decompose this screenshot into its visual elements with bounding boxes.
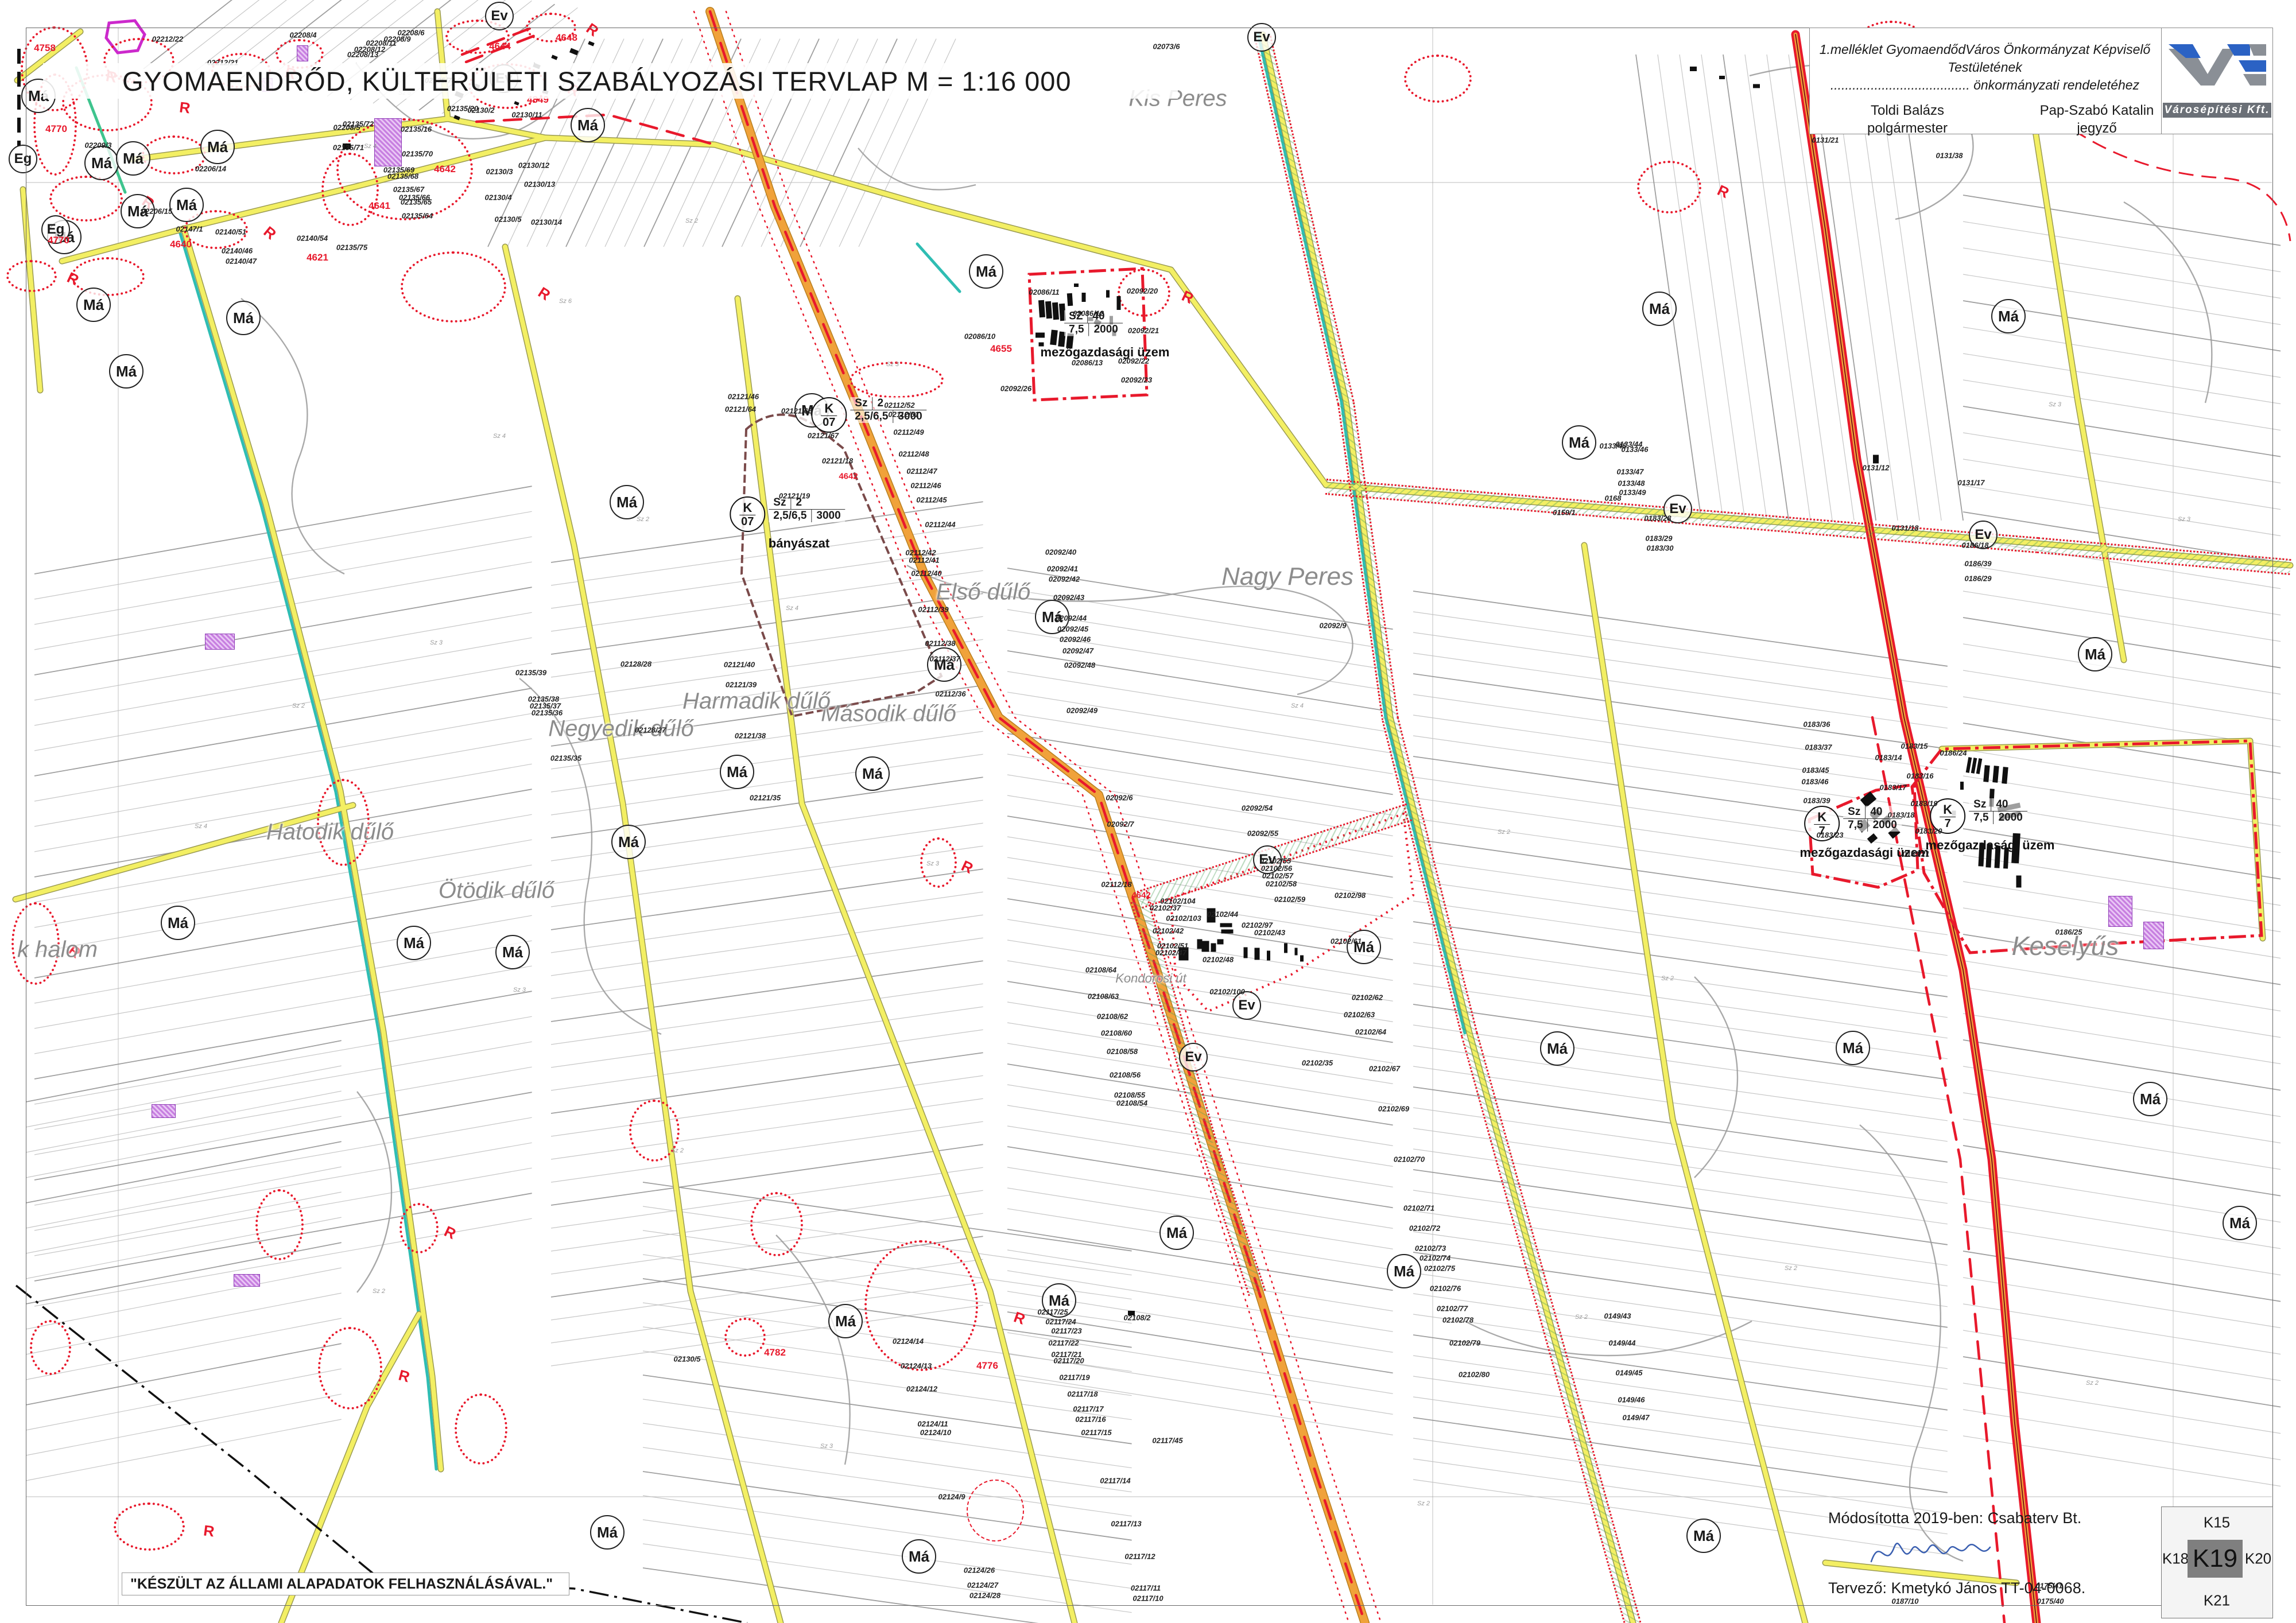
building-footprint [1221, 930, 1234, 934]
parcel-number: 02135/71 [333, 143, 364, 152]
parcel-number: 02117/17 [1073, 1405, 1103, 1414]
parcel-line [1007, 899, 1393, 960]
road-line [1584, 545, 1805, 1623]
special-area-purple [374, 118, 402, 166]
parcel-line [1963, 1014, 2281, 1064]
place-name-label: Harmadik dűlő [682, 689, 831, 715]
parcel-number: 02102/74 [1420, 1254, 1450, 1263]
parcel-number: 02124/9 [938, 1493, 965, 1501]
parcel-number: 02140/54 [297, 234, 328, 243]
parcel-number: 0183/23 [1817, 831, 1844, 840]
parcel-line [1963, 433, 2281, 483]
parcel-number: 02135/39 [515, 669, 546, 677]
parcel-number: 02092/23 [1121, 376, 1152, 385]
parcel-number: 0131/18 [1892, 524, 1919, 533]
special-area-purple [234, 1274, 260, 1287]
parcel-number: 02108/58 [1107, 1047, 1138, 1056]
parcel-line [34, 915, 532, 1003]
parcel-line [1680, 55, 1745, 521]
arch-site-boundary [114, 1502, 185, 1551]
ma-zone-badge: Má [590, 1515, 625, 1550]
parcel-number: 02092/47 [1062, 647, 1093, 655]
parcel-line [551, 938, 983, 999]
parcel-number: 02117/11 [1131, 1584, 1161, 1593]
parcel-number: 02102/61 [1331, 937, 1362, 946]
parcel-line [34, 713, 532, 801]
parcel-number: 02102/48 [1203, 956, 1234, 964]
parcel-line [1413, 1418, 1948, 1493]
parcel-line [1007, 1147, 1393, 1207]
parcel-number: 02130/4 [485, 193, 512, 202]
modified-by: Módosította 2019-ben: Csabaterv Bt. [1828, 1509, 2127, 1527]
ma-zone-badge: Má [1347, 930, 1381, 964]
place-name-label: k halom [17, 937, 98, 963]
parcel-number: 02117/20 [1053, 1357, 1084, 1365]
parcel-number: 02117/15 [1081, 1428, 1111, 1437]
parcel-line [1413, 1252, 1948, 1327]
parcel-number: 02121/18 [822, 457, 853, 465]
parcel-line [34, 966, 532, 1054]
parcel-line [1963, 1093, 2281, 1143]
parcel-line [551, 777, 983, 838]
parcel-line [1007, 961, 1393, 1022]
parcel-number: 02108/56 [1110, 1071, 1141, 1080]
parcel-number: 02102/100 [1209, 988, 1244, 996]
parcel-line [1413, 632, 1948, 708]
parcel-number: 02130/3 [486, 168, 513, 176]
parcel-number: 0186/24 [1940, 749, 1967, 758]
parcel-line [1413, 942, 1948, 1018]
parcel-line [1963, 565, 2281, 615]
parcel-number: 02102/70 [1394, 1155, 1425, 1164]
land-use-code: Sz 2 [1417, 1500, 1430, 1507]
arch-site-id: 4758 [34, 42, 56, 54]
land-use-code: Sz 2 [1785, 1265, 1797, 1272]
k-zone-badge: K7Sz407,52000 [1930, 798, 2027, 834]
building-footprint [1300, 956, 1304, 962]
parcel-number: 0183/19 [1911, 799, 1938, 808]
arch-site-boundary [318, 1327, 382, 1410]
page-title: GYOMAENDRŐD, KÜLTERÜLETI SZABÁLYOZÁSI TE… [43, 65, 1072, 97]
parcel-line [1007, 671, 1393, 732]
ma-zone-badge: Má [720, 755, 754, 789]
parcel-number: 02102/67 [1369, 1065, 1400, 1073]
parcel-number: 02102/76 [1430, 1284, 1461, 1293]
parcel-line [1007, 1167, 1393, 1228]
road-line [184, 228, 441, 1469]
ev-zone-badge: Ev [1247, 23, 1276, 52]
parcel-number: 02212/22 [152, 35, 183, 44]
parcel-number: 02121/40 [724, 661, 755, 669]
parcel-line [26, 1091, 342, 1152]
land-use-code: Sz 2 [1661, 975, 1674, 982]
parcel-number: 02130/2 [468, 106, 495, 115]
place-name-label: Ötödik dűlő [439, 878, 554, 904]
ma-zone-badge: Má [1642, 292, 1677, 326]
parcel-number: 02140/47 [226, 257, 257, 266]
parcel-number: 02092/20 [1127, 287, 1158, 296]
parcel-line [34, 941, 532, 1028]
mayor-name: Toldi Balázs [1844, 102, 1971, 119]
parcel-number: 0183/30 [1647, 544, 1674, 553]
special-area-purple [297, 45, 308, 61]
parcel-number: 02121/35 [750, 794, 781, 802]
parcel-line [26, 1419, 342, 1481]
ma-zone-badge: Má [611, 825, 646, 859]
arch-site-id: 4782 [764, 1347, 786, 1358]
parcel-number: 02124/13 [901, 1362, 932, 1370]
parcel-number: 02112/45 [916, 496, 947, 504]
arch-site-id: 4776 [976, 1360, 998, 1372]
parcel-line [1963, 1066, 2281, 1117]
contour-line [776, 1235, 850, 1465]
special-area-purple [152, 1104, 176, 1118]
parcel-line [1413, 880, 1948, 956]
parcel-number: 02135/35 [550, 754, 581, 763]
official-mayor: Toldi Balázs polgármester [1844, 102, 1971, 137]
parcel-number: 02092/42 [1049, 575, 1080, 584]
parcel-line [1413, 715, 1948, 790]
parcel-number: 02130/12 [518, 161, 549, 170]
ma-zone-badge: Má [1387, 1254, 1421, 1288]
special-area-purple [205, 634, 235, 650]
land-use-code: Sz 3 [2178, 516, 2190, 523]
parcel-line [26, 1344, 342, 1405]
special-area-purple [2108, 896, 2132, 927]
parcel-line [551, 1030, 983, 1090]
parcel-number: 02121/46 [728, 393, 759, 401]
arch-site-id: 4642 [434, 164, 456, 175]
parcel-number: 02102/77 [1437, 1304, 1468, 1313]
parcel-number: 02102/80 [1459, 1370, 1490, 1379]
parcel-line [1007, 692, 1393, 753]
parcel-number: 02092/40 [1045, 548, 1076, 557]
ma-zone-badge: Má [2223, 1206, 2257, 1240]
parcel-number: 02112/49 [893, 428, 924, 437]
k-zone-params: Sz407,52000 [1969, 798, 2027, 824]
credits-block: Módosította 2019-ben: Csabaterv Bt. Terv… [1828, 1509, 2127, 1527]
parcel-line [1007, 1188, 1393, 1249]
parcel-number: 02102/43 [1254, 929, 1285, 937]
place-name-label: Kondorosi út [1115, 971, 1186, 986]
parcel-number: 02108/62 [1097, 1012, 1128, 1021]
parcel-number: 02092/22 [1118, 357, 1149, 366]
parcel-number: 02102/103 [1166, 914, 1201, 923]
parcel-line [551, 984, 983, 1045]
parcel-number: 0133/47 [1617, 468, 1644, 476]
parcel-number: 02124/26 [964, 1566, 995, 1575]
arch-site-boundary [864, 1240, 978, 1371]
road-line [184, 228, 441, 1469]
parcel-line [1007, 919, 1393, 980]
parcel-number: 02208/13 [347, 51, 378, 59]
parcel-number: 02092/9 [1320, 622, 1347, 630]
parcel-number: 02102/57 [1262, 872, 1293, 880]
building-footprint [1220, 923, 1232, 927]
land-use-code: Sz 2 [685, 218, 698, 224]
ma-zone-badge: Má [1836, 1031, 1870, 1065]
ma-zone-badge: Má [397, 926, 431, 960]
k-zone-caption: mezőgazdasági üzem [1926, 838, 2055, 853]
parcel-number: 02108/54 [1116, 1099, 1147, 1108]
land-use-code: Sz 3 [886, 361, 899, 368]
arch-site-id: 4770 [45, 123, 67, 135]
contour-line [241, 298, 344, 574]
parcel-number: 02086/13 [1072, 359, 1103, 367]
parcel-number: 02121/66 [781, 407, 812, 416]
arch-site-id: 4641 [369, 200, 390, 212]
arch-site-boundary [6, 260, 57, 292]
parcel-number: 02117/12 [1124, 1552, 1155, 1561]
parcel-number: 02102/47 [1155, 949, 1186, 957]
parcel-number: 02121/64 [725, 405, 756, 414]
parcel-number: 0133/48 [1618, 479, 1645, 488]
parcel-number: 02112/36 [935, 690, 965, 698]
parcel-number: 02092/7 [1107, 820, 1134, 829]
building-footprint [1244, 948, 1248, 958]
parcel-number: 0149/44 [1609, 1339, 1636, 1348]
arch-site-boundary [255, 1189, 304, 1260]
parcel-number: 02135/75 [336, 243, 367, 252]
land-use-code: Sz 3 [430, 639, 443, 646]
road-line [505, 247, 781, 1623]
parcel-number: 02112/41 [909, 556, 939, 565]
parcel-line [1413, 1273, 1948, 1348]
parcel-number: 02102/64 [1355, 1028, 1386, 1036]
parcel-line [1963, 354, 2281, 404]
parcel-line [1963, 829, 2281, 879]
parcel-number: 02102/44 [1207, 910, 1238, 919]
building-footprint [1267, 951, 1270, 961]
ma-zone-badge: Má [161, 906, 195, 940]
parcel-line [26, 1369, 342, 1430]
arch-site-boundary [750, 1192, 803, 1256]
parcel-number: 02092/21 [1128, 327, 1159, 335]
parcel-number: 0186/29 [1965, 574, 1992, 583]
parcel-line [1007, 816, 1393, 877]
parcel-line [1963, 222, 2281, 272]
contour-line [1694, 977, 1737, 1178]
parcel-number: 02102/71 [1403, 1204, 1434, 1213]
parcel-number: 02117/10 [1133, 1594, 1163, 1603]
ma-zone-badge: Má [855, 756, 890, 791]
arch-site-boundary [401, 251, 506, 323]
parcel-number: 02108/60 [1101, 1029, 1132, 1038]
place-name-label: Nagy Peres [1221, 562, 1353, 591]
place-name-label: Második dűlő [821, 701, 956, 727]
parcel-line [26, 1394, 342, 1455]
ma-zone-badge: Má [902, 1539, 936, 1574]
parcel-line [1963, 1119, 2281, 1170]
base-data-note: "KÉSZÜLT AZ ÁLLAMI ALAPADATOK FELHASZNÁL… [122, 1576, 553, 1593]
parcel-line [1963, 406, 2281, 457]
parcel-line [1413, 922, 1948, 997]
parcel-number: 02112/37 [929, 655, 960, 663]
parcel-line [1413, 1376, 1948, 1451]
arch-site-r-mark: R [203, 1521, 215, 1540]
land-use-code: Sz 2 [373, 1288, 385, 1295]
parcel-number: 02102/73 [1415, 1244, 1446, 1253]
arch-site-boundary [1637, 161, 1701, 213]
ma-zone-badge: Má [1540, 1031, 1574, 1066]
parcel-line [1413, 694, 1948, 770]
ma-zone-badge: Má [169, 188, 204, 222]
parcel-line [1413, 612, 1948, 687]
parcel-line [551, 846, 983, 907]
parcel-line [643, 1568, 1132, 1623]
parcel-number: 02135/70 [402, 150, 433, 158]
parcel-number: 02073/6 [1153, 42, 1180, 51]
parcel-line [1413, 1170, 1948, 1245]
parcel-line [26, 1293, 342, 1354]
parcel-number: 02124/11 [917, 1420, 948, 1428]
arch-site-id: 4655 [990, 343, 1012, 355]
parcel-number: 02092/54 [1242, 804, 1273, 813]
parcel-line [34, 739, 532, 826]
building-footprint [1217, 939, 1224, 945]
parcel-number: 02108/55 [1114, 1091, 1145, 1100]
parcel-number: 02092/43 [1053, 593, 1084, 602]
building-footprint [1690, 67, 1697, 71]
annex-line2: ...................................... ö… [1816, 76, 2154, 94]
parcel-number: 02130/13 [524, 180, 555, 189]
ma-zone-badge: Má [76, 288, 111, 322]
arch-site-boundary-dashed [967, 1480, 1024, 1542]
parcel-number: 02117/19 [1059, 1373, 1089, 1382]
parcel-number: 0183/17 [1880, 783, 1907, 792]
parcel-number: 02128/28 [620, 660, 651, 669]
road-line [1584, 545, 1805, 1623]
parcel-line [26, 1116, 342, 1178]
arch-site-id: 4648 [556, 32, 577, 44]
parcel-number: 0149/45 [1616, 1369, 1643, 1377]
ma-zone-badge: Má [2133, 1082, 2167, 1116]
place-name-label: Első dűlő [936, 580, 1031, 605]
ma-zone-badge: Má [200, 130, 235, 164]
sheet-ref-bottom: K21 [2204, 1592, 2230, 1610]
parcel-line [26, 1268, 342, 1329]
ma-zone-badge: Má [828, 1304, 863, 1338]
parcel-number: 0187/10 [1892, 1597, 1919, 1606]
parcel-line [1413, 1232, 1948, 1307]
parcel-line [551, 892, 983, 953]
parcel-line [1963, 327, 2281, 378]
parcel-number: 02208/4 [290, 31, 317, 40]
building-footprint [1873, 455, 1879, 464]
ma-zone-badge: Má [927, 647, 961, 682]
arch-site-id: 4644 [489, 41, 511, 52]
title-band: GYOMAENDRŐD, KÜLTERÜLETI SZABÁLYOZÁSI TE… [43, 63, 1178, 99]
parcel-line [1413, 1335, 1948, 1410]
parcel-number: 02086/12 [1073, 309, 1104, 318]
parcel-number: 02092/46 [1060, 635, 1091, 644]
ma-zone-badge: Má [226, 301, 261, 335]
k-zone-caption: mezőgazdasági üzem [1041, 345, 1170, 360]
parcel-number: 02092/45 [1057, 625, 1088, 634]
parcel-number: 02102/42 [1153, 927, 1184, 935]
parcel-number: 02102/98 [1335, 891, 1366, 900]
parcel-number: 02121/38 [735, 732, 766, 740]
building-footprint [1960, 782, 1964, 790]
arch-site-id: 4640 [170, 239, 192, 250]
parcel-number: 02140/46 [222, 247, 253, 255]
parcel-line [1007, 1374, 1393, 1435]
parcel-number: 0186/39 [1965, 560, 1992, 568]
building-footprint [1074, 284, 1079, 287]
land-use-code: Sz 3 [926, 860, 939, 867]
parcel-number: 0168 [1605, 494, 1622, 503]
parcel-number: 02102/37 [1150, 904, 1181, 913]
parcel-number: 02135/67 [393, 185, 424, 194]
parcel-number: 0183/29 [1646, 534, 1673, 543]
logo-cell: Városépítési Kft. [2161, 28, 2272, 134]
parcel-number: 0183/15 [1901, 742, 1928, 751]
designer: Tervező: Kmetykó János TT-04-0068. [1828, 1579, 2085, 1597]
arch-site-boundary [71, 257, 145, 296]
eg-zone-badge: Eg [9, 145, 37, 173]
parcel-number: 0183/39 [1804, 797, 1830, 805]
parcel-line [34, 663, 532, 751]
parcel-line [1658, 55, 1723, 521]
parcel-line [1413, 591, 1948, 666]
building-footprint [1045, 301, 1052, 319]
ma-zone-badge: Má [84, 146, 119, 180]
building-footprint [1067, 293, 1073, 306]
parcel-line [551, 1007, 983, 1067]
k-zone-params: Sz22,5/6,53000 [769, 496, 845, 522]
parcel-number: 02130/14 [531, 218, 562, 227]
land-use-code: Sz 4 [364, 143, 377, 150]
land-use-code: Sz 4 [1291, 702, 1304, 709]
parcel-line [34, 688, 532, 776]
parcel-number: 02112/38 [925, 639, 955, 648]
parcel-number: 0131/21 [1812, 136, 1839, 145]
parcel-line [34, 1016, 532, 1104]
parcel-number: 02092/55 [1247, 829, 1278, 838]
building-footprint [1052, 302, 1059, 320]
land-use-code: Sz 3 [2049, 401, 2061, 408]
parcel-number: 02117/25 [1037, 1308, 1068, 1317]
base-data-note-band: "KÉSZÜLT AZ ÁLLAMI ALAPADATOK FELHASZNÁL… [122, 1572, 569, 1595]
parcel-number: 02209/3 [85, 141, 112, 150]
parcel-number: 02102/72 [1409, 1224, 1440, 1233]
building-footprint [1753, 84, 1760, 88]
parcel-line [1007, 981, 1393, 1042]
parcel-number: 02092/44 [1056, 614, 1087, 623]
parcel-number: 0149/47 [1623, 1414, 1650, 1422]
parcel-line [1413, 1314, 1948, 1389]
parcel-line [1413, 1397, 1948, 1472]
parcel-number: 02102/59 [1274, 895, 1305, 904]
signature [1868, 1530, 2000, 1573]
special-area-purple [2143, 922, 2164, 949]
official-notary: Pap-Szabó Katalin jegyző [2034, 102, 2160, 137]
parcel-number: 02112/40 [911, 569, 941, 578]
land-use-code: Sz 6 [559, 298, 572, 305]
parcel-number: 0183/37 [1805, 743, 1832, 752]
building-footprint [1284, 943, 1287, 953]
parcel-line [34, 991, 532, 1079]
parcel-line [1963, 987, 2281, 1038]
parcel-number: 02117/23 [1051, 1327, 1081, 1335]
parcel-number: 0186/18 [1962, 541, 1989, 550]
notary-role: jegyző [2034, 119, 2160, 137]
parcel-line [1963, 1436, 2281, 1486]
arch-site-r-mark: R [179, 99, 191, 118]
parcel-number: 02086/10 [964, 332, 995, 341]
parcel-number: 02121/19 [779, 492, 810, 500]
parcel-number: 0183/16 [1907, 772, 1934, 781]
